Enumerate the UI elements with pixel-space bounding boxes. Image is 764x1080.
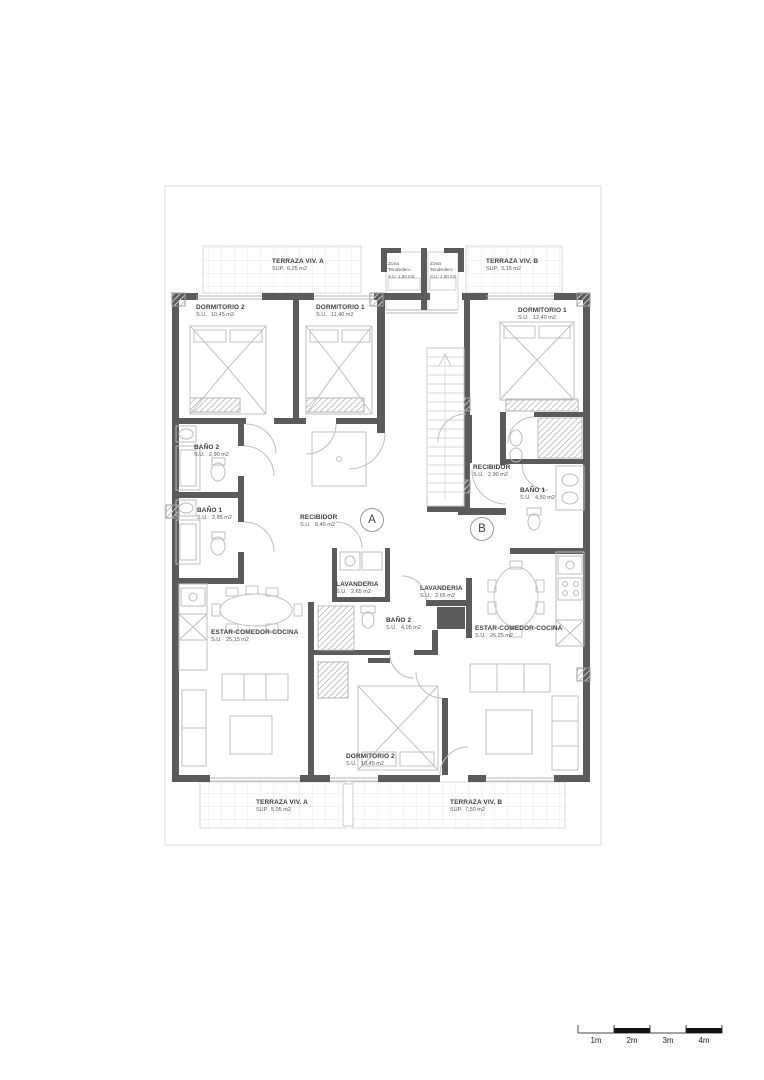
- unit-marker-a: A: [360, 508, 384, 532]
- room-label-lavanderia-b: LAVANDERIA S.U.2,65 m2: [420, 585, 463, 601]
- room-label-recibidor-b: RECIBIDOR S.U.2,90 m2: [473, 464, 510, 480]
- scale-label-4m: 4m: [695, 1036, 713, 1045]
- room-label-bano2-b: BAÑO 2 S.U.4,05 m2: [386, 617, 421, 633]
- room-label-bano1-b: BAÑO 1 S.U.4,50 m2: [520, 487, 555, 503]
- room-label-tendedero-right: Zona Tendedero S.U.1,50 m2: [430, 262, 456, 280]
- scale-label-1m: 1m: [587, 1036, 605, 1045]
- room-label-estar-b: ESTAR-COMEDOR-COCINA S.U.26,25 m2: [475, 625, 562, 641]
- room-label-dormitorio1-b: DORMITORIO 1 S.U.12,40 m2: [518, 307, 567, 323]
- floor-plan-page: TERRAZA VIV. A SUP.6,25 m2 Zona Tendeder…: [0, 0, 764, 1080]
- room-label-terraza-b-bottom: TERRAZA VIV. B SUP.7,50 m2: [450, 799, 502, 815]
- unit-marker-a-letter: A: [368, 514, 376, 526]
- room-label-dormitorio1-a: DORMITORIO 1 S.U.11,40 m2: [316, 304, 365, 320]
- room-label-recibidor-a: RECIBIDOR S.U.8,40 m2: [300, 514, 337, 530]
- room-label-bano1-a: BAÑO 1 S.U.2,85 m2: [197, 507, 232, 523]
- room-label-estar-a: ESTAR-COMEDOR-COCINA S.U.25,15 m2: [211, 629, 298, 645]
- room-label-lavanderia-a: LAVANDERIA S.U.2,65 m2: [336, 581, 379, 597]
- unit-marker-b-letter: B: [478, 523, 486, 535]
- staircase: [427, 348, 464, 506]
- room-label-tendedero-left: Zona Tendedero S.U.1,50 m2: [388, 262, 414, 280]
- scale-label-3m: 3m: [659, 1036, 677, 1045]
- unit-marker-b: B: [470, 517, 494, 541]
- room-label-dormitorio2-bottom: DORMITORIO 2 S.U.10,45 m2: [346, 753, 395, 769]
- scale-bar: [578, 1025, 722, 1033]
- room-label-terraza-a-top: TERRAZA VIV. A SUP.6,25 m2: [272, 258, 324, 274]
- room-label-bano2-a: BAÑO 2 S.U.2,90 m2: [194, 444, 229, 460]
- bathroom-fixtures: [176, 418, 584, 650]
- bottom-terraces: [200, 782, 565, 828]
- room-label-terraza-b-top: TERRAZA VIV. B SUP.3,15 m2: [486, 258, 538, 274]
- laundry-appliances: [340, 552, 382, 570]
- floor-plan-drawing: [0, 0, 764, 1080]
- hall-closet: [312, 432, 366, 486]
- room-label-terraza-a-bottom: TERRAZA VIV. A SUP.5,05 m2: [256, 799, 308, 815]
- scale-label-2m: 2m: [623, 1036, 641, 1045]
- room-label-dormitorio2-top: DORMITORIO 2 S.U.10,45 m2: [196, 304, 245, 320]
